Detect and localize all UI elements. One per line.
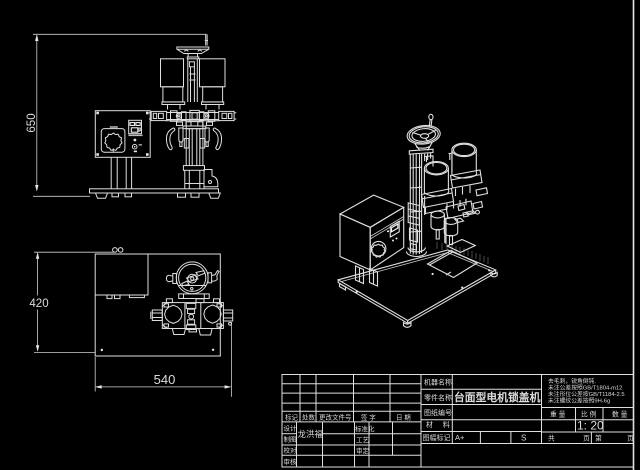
svg-text:1: 20: 1: 20 <box>577 419 604 433</box>
svg-text:去毛刺，锐角倒钝.: 去毛刺，锐角倒钝. <box>548 377 596 385</box>
svg-text:650: 650 <box>26 113 38 132</box>
svg-text:签 字: 签 字 <box>361 413 376 422</box>
svg-text:审核: 审核 <box>284 457 298 466</box>
svg-text:制图: 制图 <box>284 435 297 444</box>
svg-text:540: 540 <box>154 372 176 387</box>
svg-text:机器名称: 机器名称 <box>424 378 452 387</box>
svg-text:日 期: 日 期 <box>396 414 411 422</box>
svg-text:共: 共 <box>548 434 555 443</box>
svg-text:页: 页 <box>583 435 590 443</box>
svg-text:设计: 设计 <box>284 424 298 433</box>
svg-text:页: 页 <box>627 435 634 443</box>
svg-text:未注螺纹公差按照9H-6g: 未注螺纹公差按照9H-6g <box>548 397 610 405</box>
svg-text:S: S <box>521 434 526 443</box>
svg-text:龙洪福: 龙洪福 <box>298 429 324 439</box>
svg-text:材 料: 材 料 <box>426 420 450 429</box>
svg-text:审定: 审定 <box>356 446 370 455</box>
svg-text:处数: 处数 <box>302 413 316 422</box>
svg-text:第: 第 <box>595 434 602 443</box>
svg-text:数 量: 数 量 <box>612 410 628 419</box>
svg-text:比 例: 比 例 <box>581 410 597 419</box>
svg-text:重 量: 重 量 <box>550 411 566 419</box>
svg-text:A+: A+ <box>455 433 465 442</box>
svg-text:校对: 校对 <box>284 446 298 455</box>
svg-text:420: 420 <box>29 298 48 310</box>
svg-text:图幅标记: 图幅标记 <box>423 433 451 442</box>
svg-text:图纸编号: 图纸编号 <box>424 408 452 417</box>
svg-text:未注公差按照GB/T1804-m12: 未注公差按照GB/T1804-m12 <box>548 384 622 392</box>
svg-text:标记: 标记 <box>285 413 299 422</box>
svg-text:工艺: 工艺 <box>356 436 370 444</box>
svg-text:未注形位公差按GB/T1184-2.5: 未注形位公差按GB/T1184-2.5 <box>548 390 625 398</box>
svg-text:台面型电机锁盖机: 台面型电机锁盖机 <box>454 390 541 404</box>
svg-text:标准化: 标准化 <box>355 424 375 433</box>
svg-text:零件名称: 零件名称 <box>424 393 452 402</box>
svg-text:更改文件号: 更改文件号 <box>319 413 352 422</box>
